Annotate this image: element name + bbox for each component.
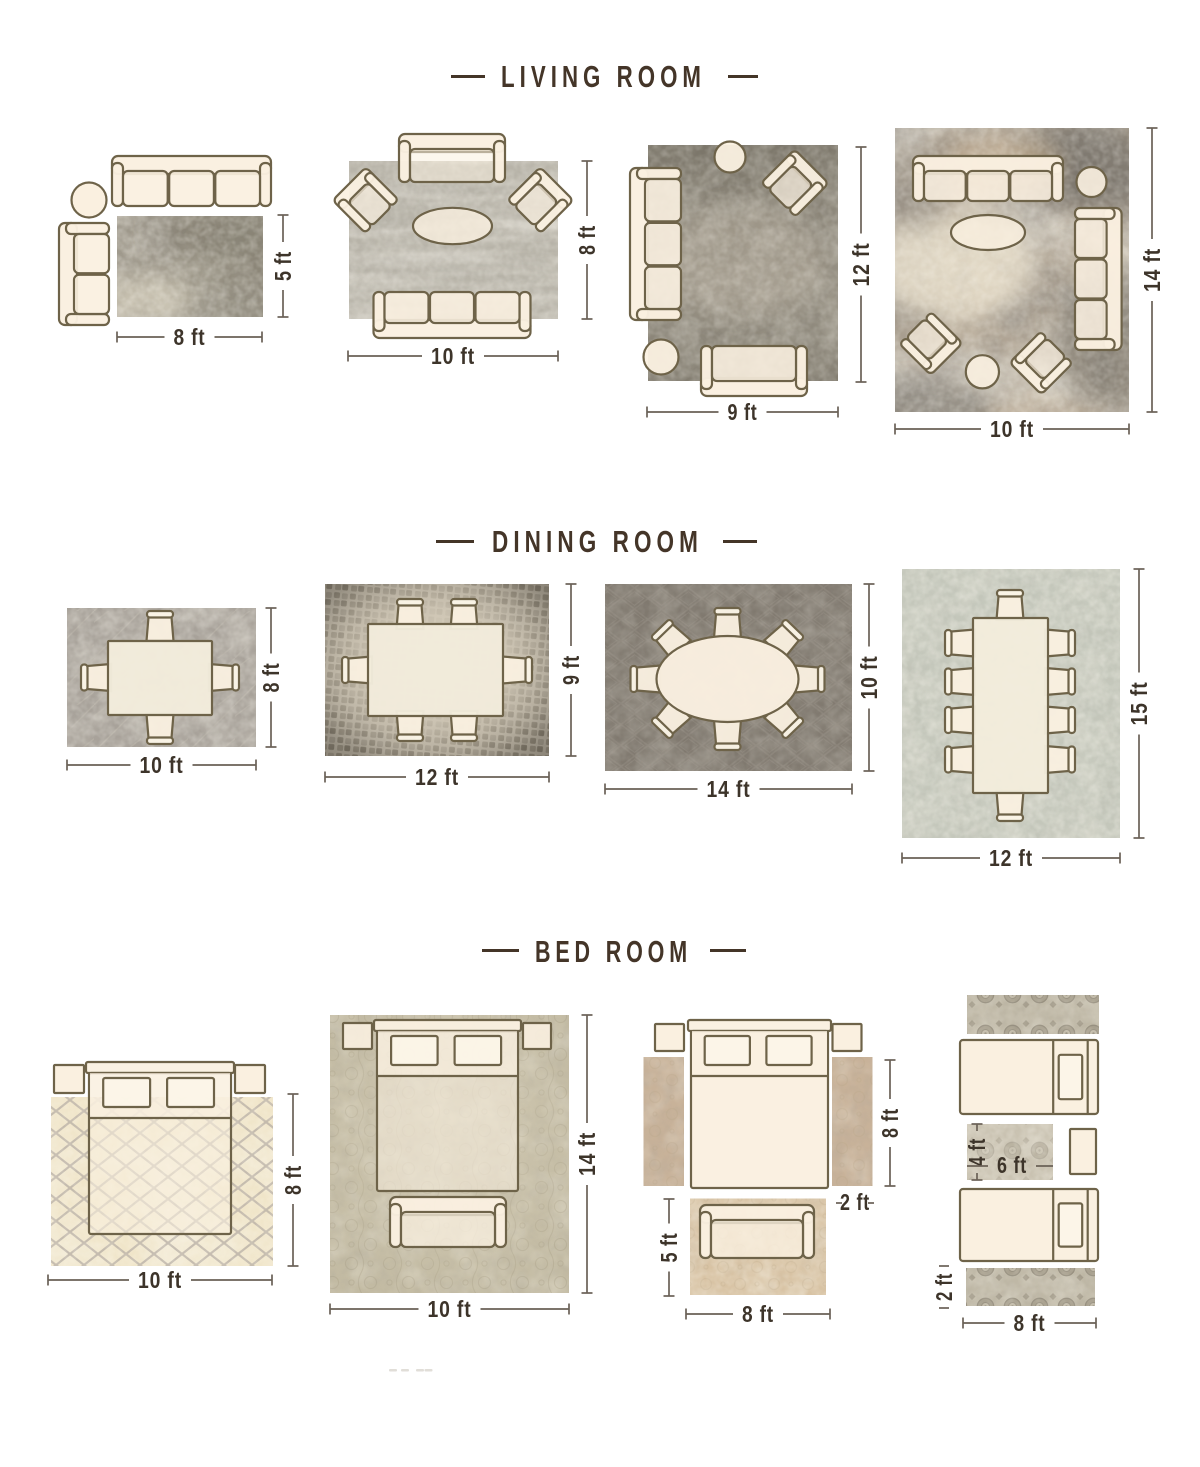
svg-text:14 ft: 14 ft bbox=[574, 1132, 600, 1176]
svg-text:9 ft: 9 ft bbox=[728, 399, 758, 425]
svg-text:14 ft: 14 ft bbox=[707, 776, 751, 802]
svg-text:8 ft: 8 ft bbox=[1014, 1310, 1046, 1336]
svg-text:5 ft: 5 ft bbox=[270, 251, 296, 281]
svg-text:DINING ROOM: DINING ROOM bbox=[492, 524, 703, 559]
svg-text:10 ft: 10 ft bbox=[140, 752, 184, 778]
svg-text:6 ft: 6 ft bbox=[997, 1152, 1027, 1178]
svg-text:8 ft: 8 ft bbox=[574, 225, 600, 255]
svg-text:14 ft: 14 ft bbox=[1139, 248, 1165, 292]
svg-text:2 ft: 2 ft bbox=[931, 1273, 957, 1301]
svg-text:10 ft: 10 ft bbox=[428, 1296, 472, 1322]
svg-text:10 ft: 10 ft bbox=[431, 343, 475, 369]
svg-text:2 ft: 2 ft bbox=[840, 1189, 870, 1215]
svg-text:8 ft: 8 ft bbox=[877, 1108, 903, 1138]
svg-text:9 ft: 9 ft bbox=[558, 655, 584, 685]
svg-text:4 ft: 4 ft bbox=[964, 1138, 990, 1166]
svg-text:12 ft: 12 ft bbox=[989, 845, 1033, 871]
svg-text:10 ft: 10 ft bbox=[856, 656, 882, 700]
svg-text:8 ft: 8 ft bbox=[280, 1165, 306, 1195]
svg-text:5 ft: 5 ft bbox=[656, 1233, 682, 1263]
svg-text:12 ft: 12 ft bbox=[848, 243, 874, 287]
svg-text:10 ft: 10 ft bbox=[990, 416, 1034, 442]
svg-text:LIVING ROOM: LIVING ROOM bbox=[501, 59, 706, 94]
svg-text:15 ft: 15 ft bbox=[1126, 682, 1152, 726]
svg-text:8 ft: 8 ft bbox=[742, 1301, 774, 1327]
svg-text:8 ft: 8 ft bbox=[174, 324, 206, 350]
svg-text:8 ft: 8 ft bbox=[258, 663, 284, 693]
svg-text:10 ft: 10 ft bbox=[138, 1267, 182, 1293]
svg-text:BED ROOM: BED ROOM bbox=[535, 934, 692, 969]
svg-text:12 ft: 12 ft bbox=[415, 764, 459, 790]
